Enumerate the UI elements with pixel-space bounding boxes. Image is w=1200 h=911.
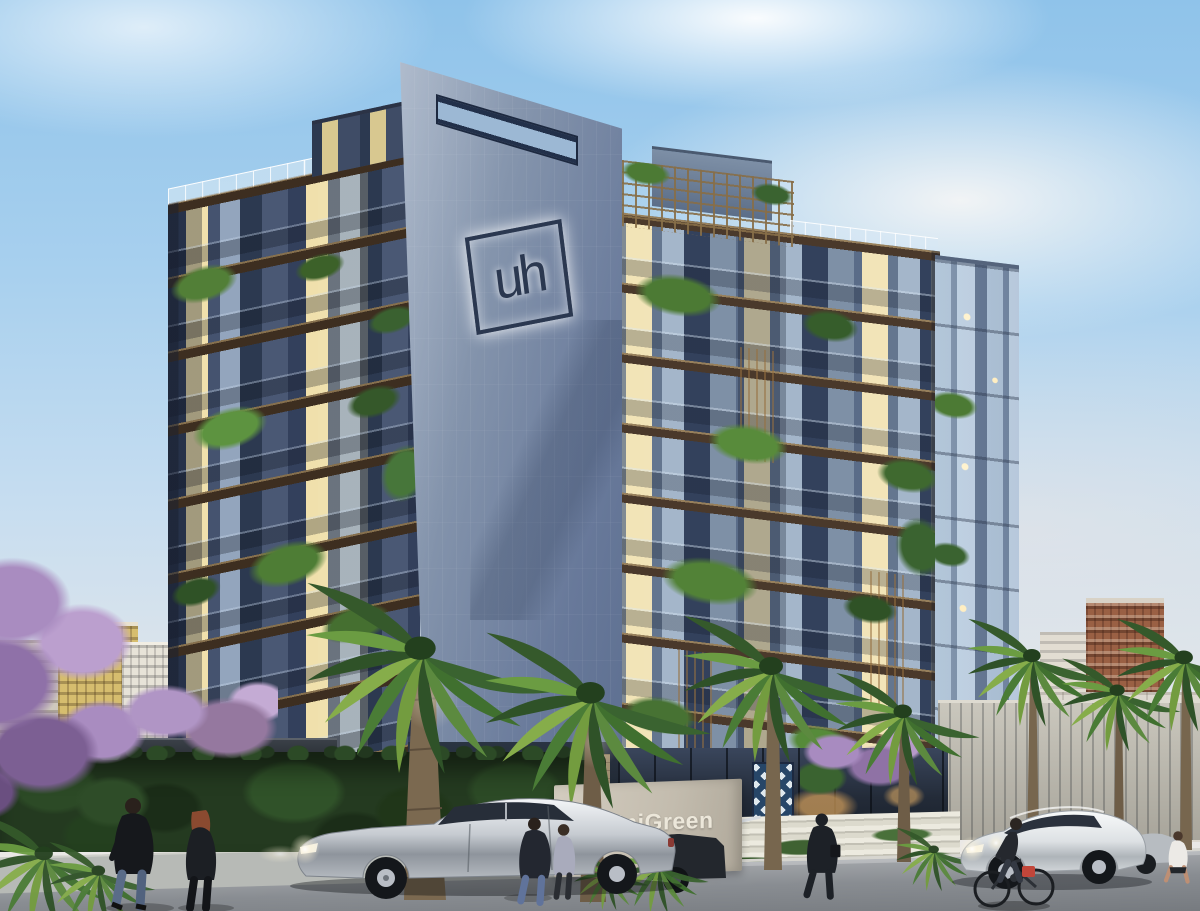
rendering-scene: uh uh UniGreen bbox=[0, 0, 1200, 911]
pedestrian-on-steps bbox=[807, 814, 841, 897]
sedan-car bbox=[258, 799, 682, 899]
sports-car bbox=[952, 807, 1152, 890]
foreground-layer bbox=[0, 0, 1200, 911]
